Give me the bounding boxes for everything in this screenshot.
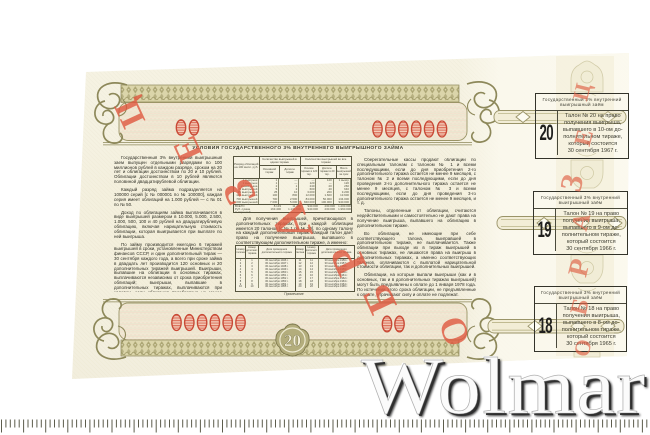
svg-text:20: 20	[284, 331, 301, 350]
